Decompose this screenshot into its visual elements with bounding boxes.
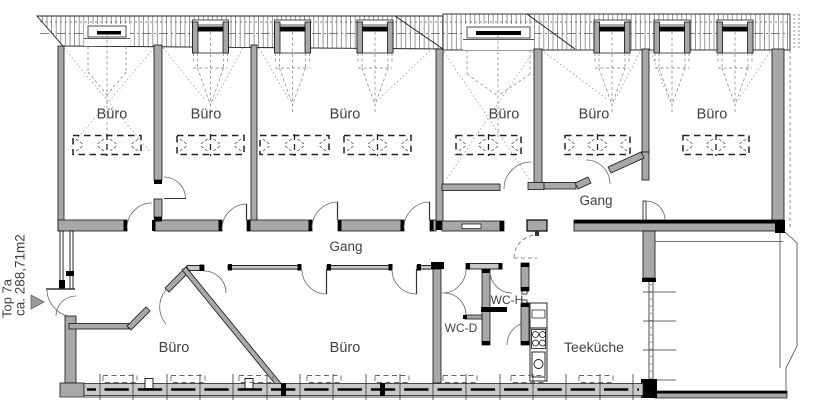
svg-text:WC-H: WC-H [491, 293, 524, 307]
svg-text:Büro: Büro [579, 107, 610, 123]
svg-text:WC-D: WC-D [445, 321, 478, 335]
svg-text:ca. 288,71m2: ca. 288,71m2 [13, 234, 28, 316]
svg-text:Büro: Büro [330, 107, 361, 123]
svg-text:Büro: Büro [159, 340, 190, 356]
svg-text:Gang: Gang [579, 193, 612, 208]
svg-text:Büro: Büro [191, 107, 222, 123]
svg-text:Gang: Gang [329, 239, 362, 254]
svg-text:Büro: Büro [97, 107, 128, 123]
svg-text:Teeküche: Teeküche [564, 339, 624, 355]
svg-text:Büro: Büro [697, 107, 728, 123]
svg-text:Büro: Büro [330, 340, 361, 356]
svg-text:Büro: Büro [489, 107, 520, 123]
